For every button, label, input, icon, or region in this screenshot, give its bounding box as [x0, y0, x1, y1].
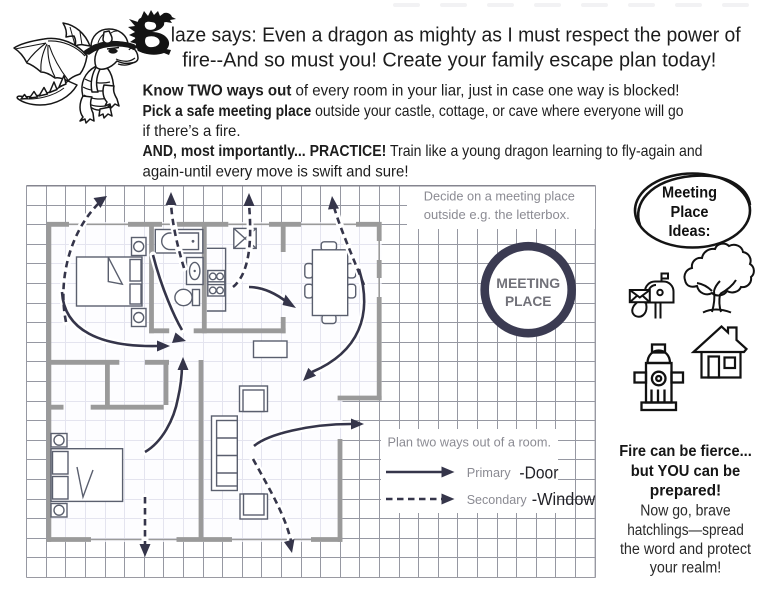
svg-text:Place: Place: [671, 204, 709, 221]
svg-text:outside e.g. the letterbox.: outside e.g. the letterbox.: [424, 207, 570, 222]
svg-text:laze says: Even a dragon as m: laze says: Even a dragon as mighty as I …: [171, 24, 741, 47]
svg-text:Pick a safe meeting place outs: Pick a safe meeting place outside your c…: [143, 103, 684, 120]
svg-text:your realm!: your realm!: [650, 560, 721, 577]
svg-text:-Door: -Door: [519, 463, 558, 483]
svg-text:the word and protect: the word and protect: [620, 541, 752, 558]
svg-text:Now go, brave: Now go, brave: [640, 503, 730, 520]
svg-text:PLACE: PLACE: [505, 293, 552, 309]
svg-text:AND, most importantly... PRACT: AND, most importantly... PRACTICE! Train…: [143, 143, 703, 160]
svg-text:-Window: -Window: [532, 489, 596, 509]
svg-text:MEETING: MEETING: [496, 275, 560, 291]
svg-text:Decide on a meeting place: Decide on a meeting place: [424, 189, 575, 204]
svg-text:Meeting: Meeting: [662, 185, 717, 202]
svg-text:Know TWO ways out of every roo: Know TWO ways out of every room in your …: [143, 83, 680, 100]
svg-text:if there’s a fire.: if there’s a fire.: [143, 123, 241, 140]
svg-text:again-until every move is swif: again-until every move is swift and sure…: [143, 163, 409, 180]
svg-text:but YOU can be: but YOU can be: [631, 463, 740, 480]
svg-text:Primary: Primary: [467, 465, 511, 480]
svg-text:hatchlings—spread: hatchlings—spread: [627, 522, 744, 539]
svg-text:prepared!: prepared!: [650, 483, 721, 500]
svg-text:Secondary: Secondary: [467, 492, 527, 507]
svg-text:Plan two ways out of a room.: Plan two ways out of a room.: [388, 435, 552, 450]
svg-text:Fire can be fierce...: Fire can be fierce...: [619, 443, 752, 460]
svg-text:fire--And so must you! Create: fire--And so must you! Create your famil…: [182, 49, 716, 72]
svg-text:Ideas:: Ideas:: [669, 223, 711, 240]
